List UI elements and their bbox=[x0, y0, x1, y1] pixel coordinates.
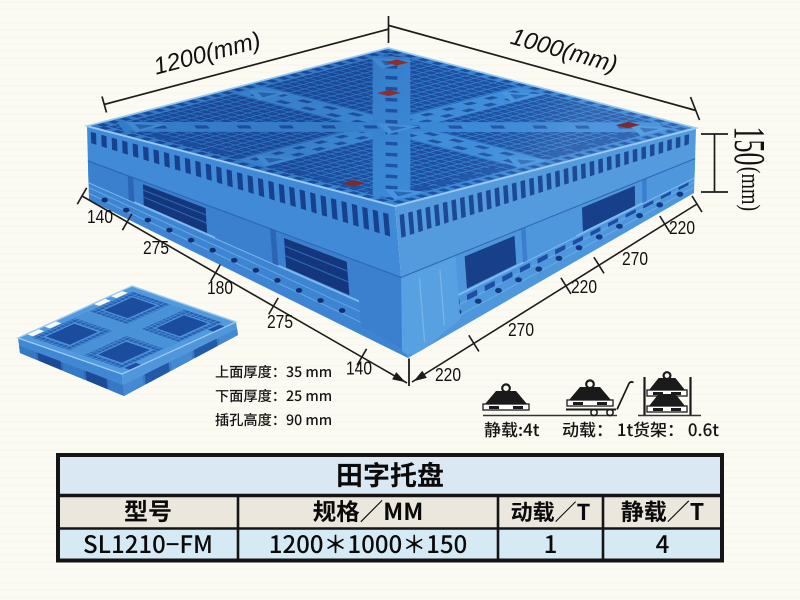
svg-text:270: 270 bbox=[508, 320, 534, 340]
svg-text:220: 220 bbox=[669, 218, 695, 238]
svg-text:275: 275 bbox=[143, 238, 169, 258]
svg-text:140: 140 bbox=[346, 359, 372, 379]
svg-text:270: 270 bbox=[622, 249, 648, 269]
svg-text:180: 180 bbox=[207, 278, 233, 298]
svg-text:140: 140 bbox=[87, 207, 113, 227]
svg-text:220: 220 bbox=[571, 277, 597, 297]
svg-text:(mm): (mm) bbox=[735, 167, 764, 211]
svg-text:275: 275 bbox=[267, 312, 293, 332]
svg-text:220: 220 bbox=[435, 365, 461, 385]
svg-text:150: 150 bbox=[725, 127, 774, 166]
